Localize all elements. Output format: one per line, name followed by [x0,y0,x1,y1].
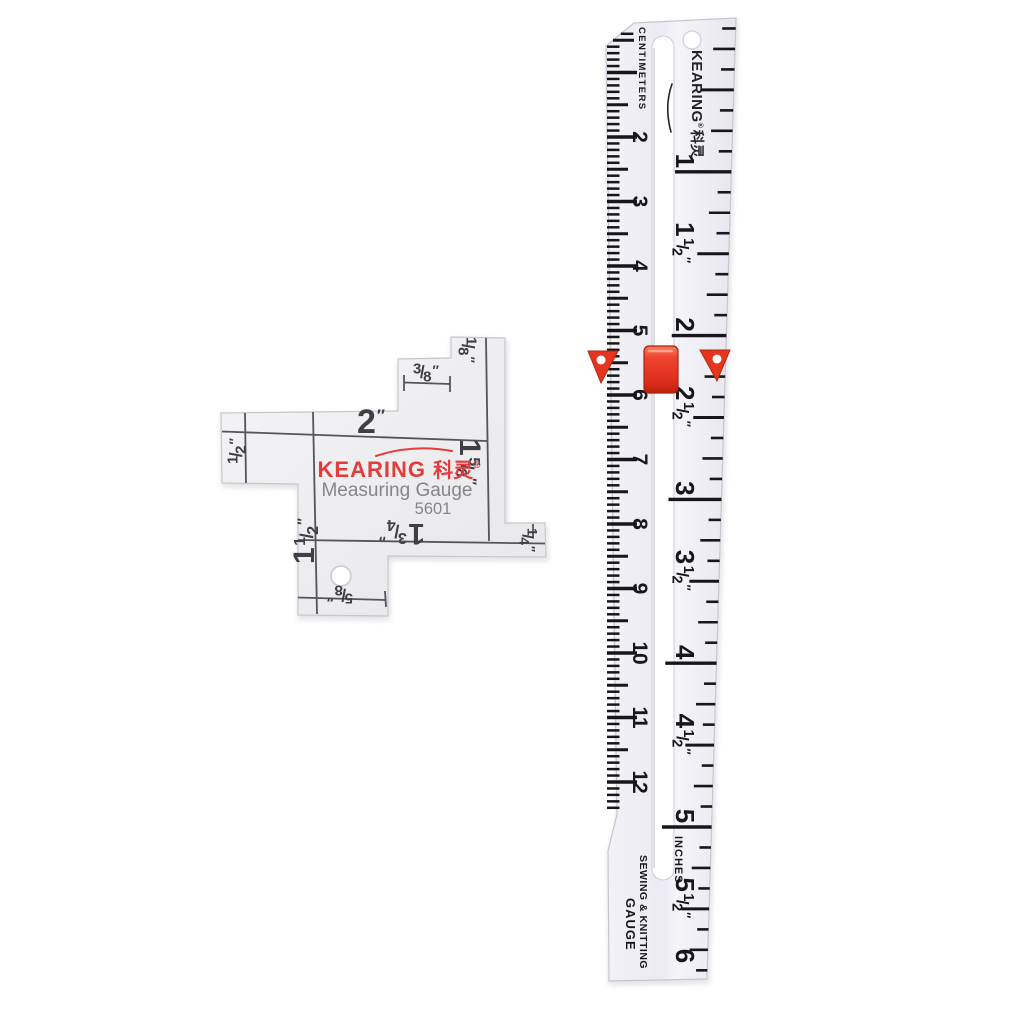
inch-number: 6 [670,949,700,963]
gauge-brand: KEARING 科灵® [318,457,482,482]
gauge-model-number: 5601 [415,500,452,518]
slider-knob [644,346,678,393]
sewing-gauge-ruler: 23456789101112CENTIMETERSKEARING®科灵111/2… [606,18,736,981]
cm-number: 3 [628,196,651,208]
slider-right-pointer-hole [713,355,722,364]
cm-number: 2 [628,131,651,143]
ruler-brand: KEARING®科灵 [688,50,705,159]
product-photo: 2″3/8″1/8″1/2″11/2″15/8″13/4″5/8″1/4″KEA… [0,0,1024,1024]
cm-number: 8 [628,518,651,530]
scene-svg: 2″3/8″1/8″1/2″11/2″15/8″13/4″5/8″1/4″KEA… [0,0,1024,1024]
cm-number: 9 [628,583,651,595]
gauge-subtitle: Measuring Gauge [321,480,472,501]
cm-scale-title: CENTIMETERS [636,27,647,111]
ruler-footer-line2: GAUGE [623,898,638,951]
ruler-hanging-hole [683,31,701,49]
inch-number: 4 [670,645,700,660]
slider-left-pointer-hole [597,356,606,365]
inch-number: 1 [670,154,700,168]
inch-number: 3 [670,481,700,495]
cm-number: 10 [628,641,651,664]
measuring-gauge: 2″3/8″1/8″1/2″11/2″15/8″13/4″5/8″1/4″KEA… [221,337,546,616]
inch-scale-title: INCHES [672,836,684,884]
inch-number: 5 [670,809,700,823]
inch-number: 2 [670,317,700,331]
cm-number: 7 [628,454,651,466]
cm-number: 4 [628,260,651,272]
gauge-scribe-line [385,591,386,607]
cm-number: 5 [628,325,651,337]
cm-number: 11 [628,706,651,729]
cm-number: 12 [628,770,651,793]
